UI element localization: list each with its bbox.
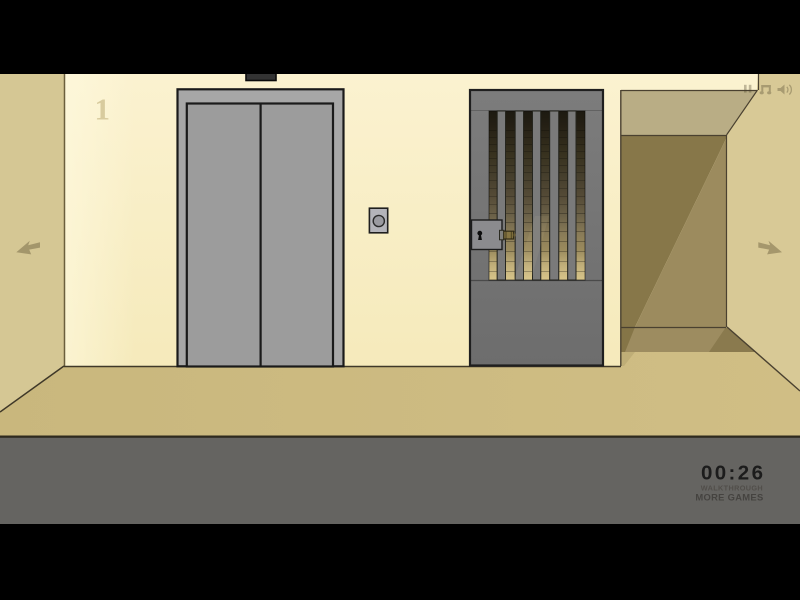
svg-text:00:26: 00:26 — [701, 461, 765, 484]
svg-text:1: 1 — [95, 92, 111, 127]
svg-text:MORE GAMES: MORE GAMES — [695, 491, 763, 502]
